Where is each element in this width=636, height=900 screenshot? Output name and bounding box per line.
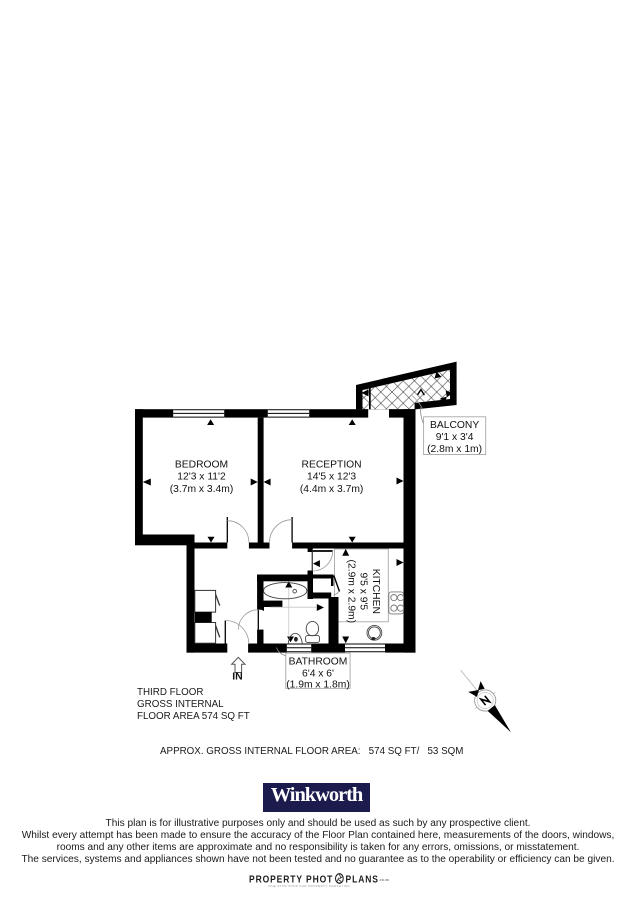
svg-text:IN: IN <box>232 671 243 683</box>
svg-text:9'5 x 9'5: 9'5 x 9'5 <box>358 572 369 610</box>
svg-text:BALCONY: BALCONY <box>430 420 479 431</box>
svg-text:9'1 x 3'4: 9'1 x 3'4 <box>436 432 474 443</box>
svg-text:BATHROOM: BATHROOM <box>289 657 348 668</box>
svg-text:12'3 x 11'2: 12'3 x 11'2 <box>177 472 226 483</box>
svg-text:6'4 x 6': 6'4 x 6' <box>302 669 334 680</box>
svg-text:(1.9m x 1.8m): (1.9m x 1.8m) <box>286 679 350 690</box>
svg-text:(2.9m x 2.9m): (2.9m x 2.9m) <box>346 560 357 624</box>
svg-text:RECEPTION: RECEPTION <box>302 459 362 470</box>
svg-text:(2.8m x 1m): (2.8m x 1m) <box>427 444 482 455</box>
svg-text:(4.4m x 3.7m): (4.4m x 3.7m) <box>300 484 364 495</box>
svg-text:14'5 x 12'3: 14'5 x 12'3 <box>307 472 356 483</box>
svg-text:(3.7m x 3.4m): (3.7m x 3.4m) <box>170 484 234 495</box>
svg-text:KITCHEN: KITCHEN <box>370 569 381 614</box>
svg-text:BEDROOM: BEDROOM <box>175 459 228 470</box>
